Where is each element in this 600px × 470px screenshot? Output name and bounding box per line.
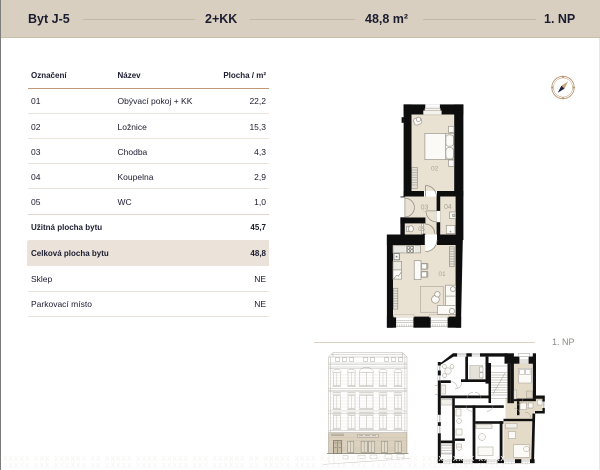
svg-text:02: 02 — [431, 166, 439, 173]
svg-text:05: 05 — [418, 227, 425, 233]
svg-text:04: 04 — [444, 204, 452, 211]
svg-text:03: 03 — [421, 204, 429, 211]
svg-text:01: 01 — [438, 271, 446, 278]
